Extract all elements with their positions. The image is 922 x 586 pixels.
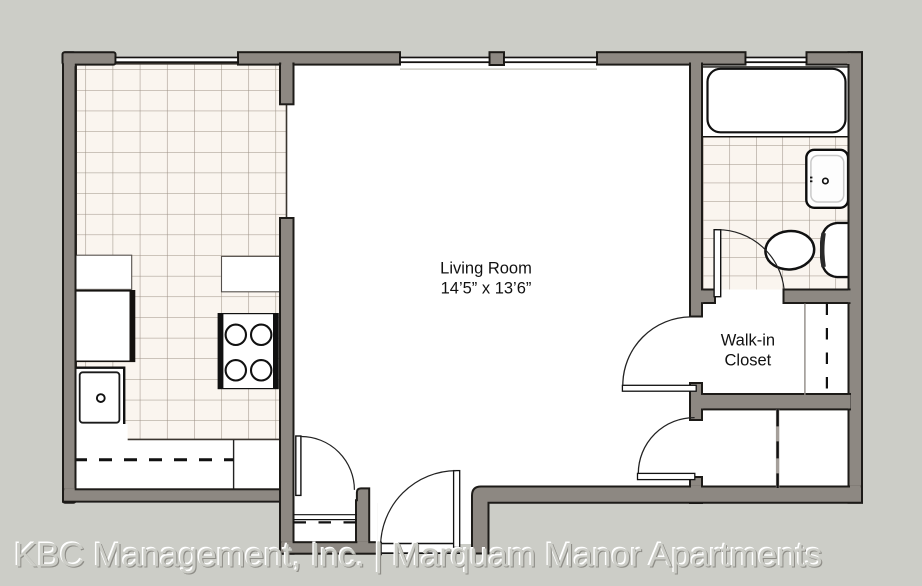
svg-text:14’5” x 13’6”: 14’5” x 13’6”: [441, 280, 532, 298]
svg-text:Walk-in: Walk-in: [721, 332, 775, 350]
svg-text:Closet: Closet: [725, 352, 772, 370]
svg-text:Living Room: Living Room: [440, 260, 532, 278]
svg-text:KBC Management, Inc. | Marquam: KBC Management, Inc. | Marquam Manor Apa…: [14, 536, 822, 574]
